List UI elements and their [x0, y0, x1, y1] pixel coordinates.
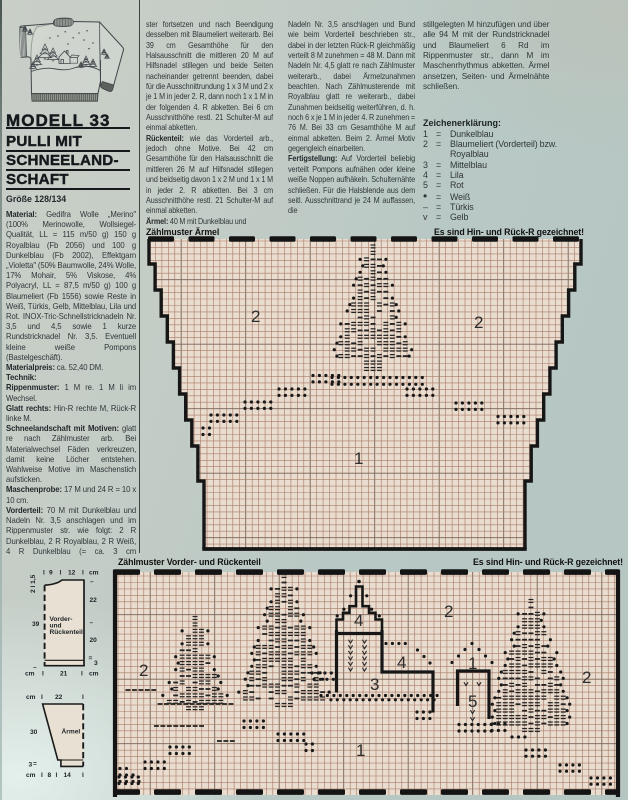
svg-text:l: l: [42, 671, 44, 678]
svg-text:39: 39: [32, 621, 40, 628]
svg-text:cm: cm: [25, 671, 35, 678]
svg-text:2: 2: [139, 661, 148, 680]
svg-text:cm: cm: [26, 694, 36, 701]
svg-text:=: =: [33, 761, 37, 768]
svg-text:4: 4: [354, 611, 363, 630]
svg-text:l: l: [56, 772, 58, 779]
svg-text:Ärmel: Ärmel: [62, 728, 81, 736]
svg-text:l: l: [41, 694, 43, 701]
svg-text:22: 22: [90, 597, 98, 604]
svg-text:30: 30: [30, 729, 38, 736]
svg-text:l: l: [82, 694, 84, 701]
svg-text:2: 2: [251, 307, 260, 326]
svg-text:1: 1: [354, 449, 363, 468]
svg-text:14: 14: [64, 772, 72, 779]
svg-text:Rückenteil: Rückenteil: [50, 629, 84, 636]
svg-text:5: 5: [468, 692, 477, 711]
svg-text:21: 21: [60, 671, 68, 678]
svg-text:3: 3: [29, 762, 33, 769]
svg-text:=: =: [89, 655, 93, 662]
svg-text:l: l: [60, 570, 62, 577]
svg-text:8: 8: [48, 772, 52, 779]
svg-text:2: 2: [444, 602, 453, 621]
svg-text:l: l: [41, 772, 43, 779]
svg-text:l: l: [81, 671, 83, 678]
svg-text:12: 12: [68, 570, 76, 577]
svg-text:–: –: [90, 620, 94, 627]
svg-text:3: 3: [94, 660, 98, 667]
svg-text:2: 2: [474, 313, 483, 332]
svg-text:cm: cm: [89, 570, 99, 577]
svg-text:l: l: [82, 570, 84, 577]
svg-text:22: 22: [55, 694, 63, 701]
svg-text:4: 4: [397, 653, 406, 672]
svg-text:20: 20: [90, 637, 98, 644]
svg-text:–: –: [90, 579, 94, 586]
svg-text:2: 2: [582, 668, 591, 687]
svg-text:9: 9: [49, 570, 53, 577]
svg-text:1: 1: [356, 741, 365, 760]
svg-text:2 l 1,5: 2 l 1,5: [30, 574, 37, 593]
svg-text:1: 1: [468, 654, 477, 673]
svg-text:cm: cm: [26, 772, 36, 779]
svg-text:l: l: [43, 570, 45, 577]
svg-text:cm: cm: [89, 671, 99, 678]
svg-text:l: l: [82, 772, 84, 779]
svg-text:3: 3: [370, 675, 379, 694]
